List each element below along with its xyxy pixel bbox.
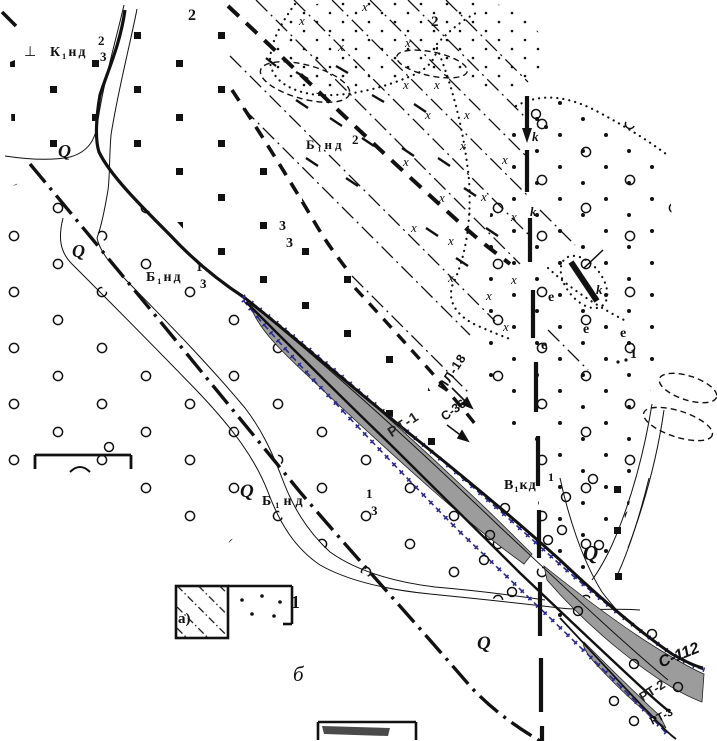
rock-letter-e: e	[541, 339, 547, 353]
rock-letter-x: x	[464, 108, 470, 121]
legend-number-1: 1	[291, 593, 300, 611]
rock-letter-x: x	[486, 289, 492, 302]
unit-label-bnd: Б₁нд	[146, 271, 183, 285]
fraction-den: 3	[286, 237, 293, 251]
legend-box-dotted	[228, 586, 292, 624]
rock-letter-x: x	[403, 155, 409, 168]
rock-letter-x: x	[411, 221, 417, 234]
unit-label-vkd: В₁кд	[504, 479, 537, 493]
rock-letter-x: x	[405, 36, 411, 49]
quaternary-label: Q	[240, 482, 254, 501]
fraction-den: 3	[100, 50, 107, 63]
rock-letter-x: x	[511, 273, 517, 286]
zone-number: 2	[431, 15, 439, 30]
rock-letter-x: x	[338, 40, 344, 53]
rock-letter-x: x	[448, 271, 454, 284]
rock-letter-x: x	[299, 14, 305, 27]
rock-letter-e: e	[620, 327, 626, 341]
unit-label-bnd: Б₁нд	[262, 495, 307, 509]
perp-symbol: ⊥	[24, 46, 36, 60]
rock-letter-x: x	[503, 320, 509, 333]
rock-letter-x: x	[460, 139, 466, 152]
legend-label-b: б	[293, 664, 304, 685]
unit-label-bnd: Б₁нд	[306, 138, 345, 151]
geological-map: ⊥ К₁нд 2 3 2 2 Б₁нд 2 3 3 Б₁нд 1 3 Б₁нд …	[0, 0, 717, 741]
fraction-den: 3	[371, 504, 378, 517]
rock-letter-e: e	[583, 323, 589, 337]
unit-index: 2	[352, 133, 359, 146]
rock-letter-k: k	[596, 283, 603, 296]
rock-letter-x: x	[511, 210, 517, 223]
quaternary-label: Q	[72, 242, 85, 260]
fraction-num: 1	[366, 487, 373, 500]
rock-letter-x: x	[403, 78, 409, 91]
rock-letter-x: x	[502, 153, 508, 166]
quaternary-label: Q	[477, 634, 491, 653]
rock-letter-k: k	[532, 130, 539, 143]
rock-letter-x: x	[481, 190, 487, 203]
unit-index: 1	[548, 471, 554, 483]
fraction-num: 2	[98, 34, 105, 47]
partial-unit-index: 1	[630, 348, 637, 362]
fraction-num: 1	[196, 260, 203, 273]
fraction-den: 3	[200, 277, 207, 290]
zone-number: 2	[188, 8, 196, 24]
quaternary-label: Q	[583, 543, 598, 564]
rock-letter-x: x	[434, 78, 440, 91]
legend-label-a: а)	[178, 612, 191, 627]
fraction-num: 3	[279, 220, 286, 234]
rock-letter-x: x	[448, 234, 454, 247]
legend-sample-fill	[322, 726, 390, 736]
map-canvas	[0, 0, 717, 741]
rock-letter-x: x	[439, 191, 445, 204]
quaternary-label: Q	[58, 142, 71, 160]
rock-letter-k: k	[530, 205, 537, 218]
unit-label-knd: К₁нд	[50, 46, 88, 60]
rock-letter-e: e	[548, 291, 554, 305]
rock-letter-x: x	[425, 108, 431, 121]
rock-letter-x: x	[362, 0, 368, 13]
